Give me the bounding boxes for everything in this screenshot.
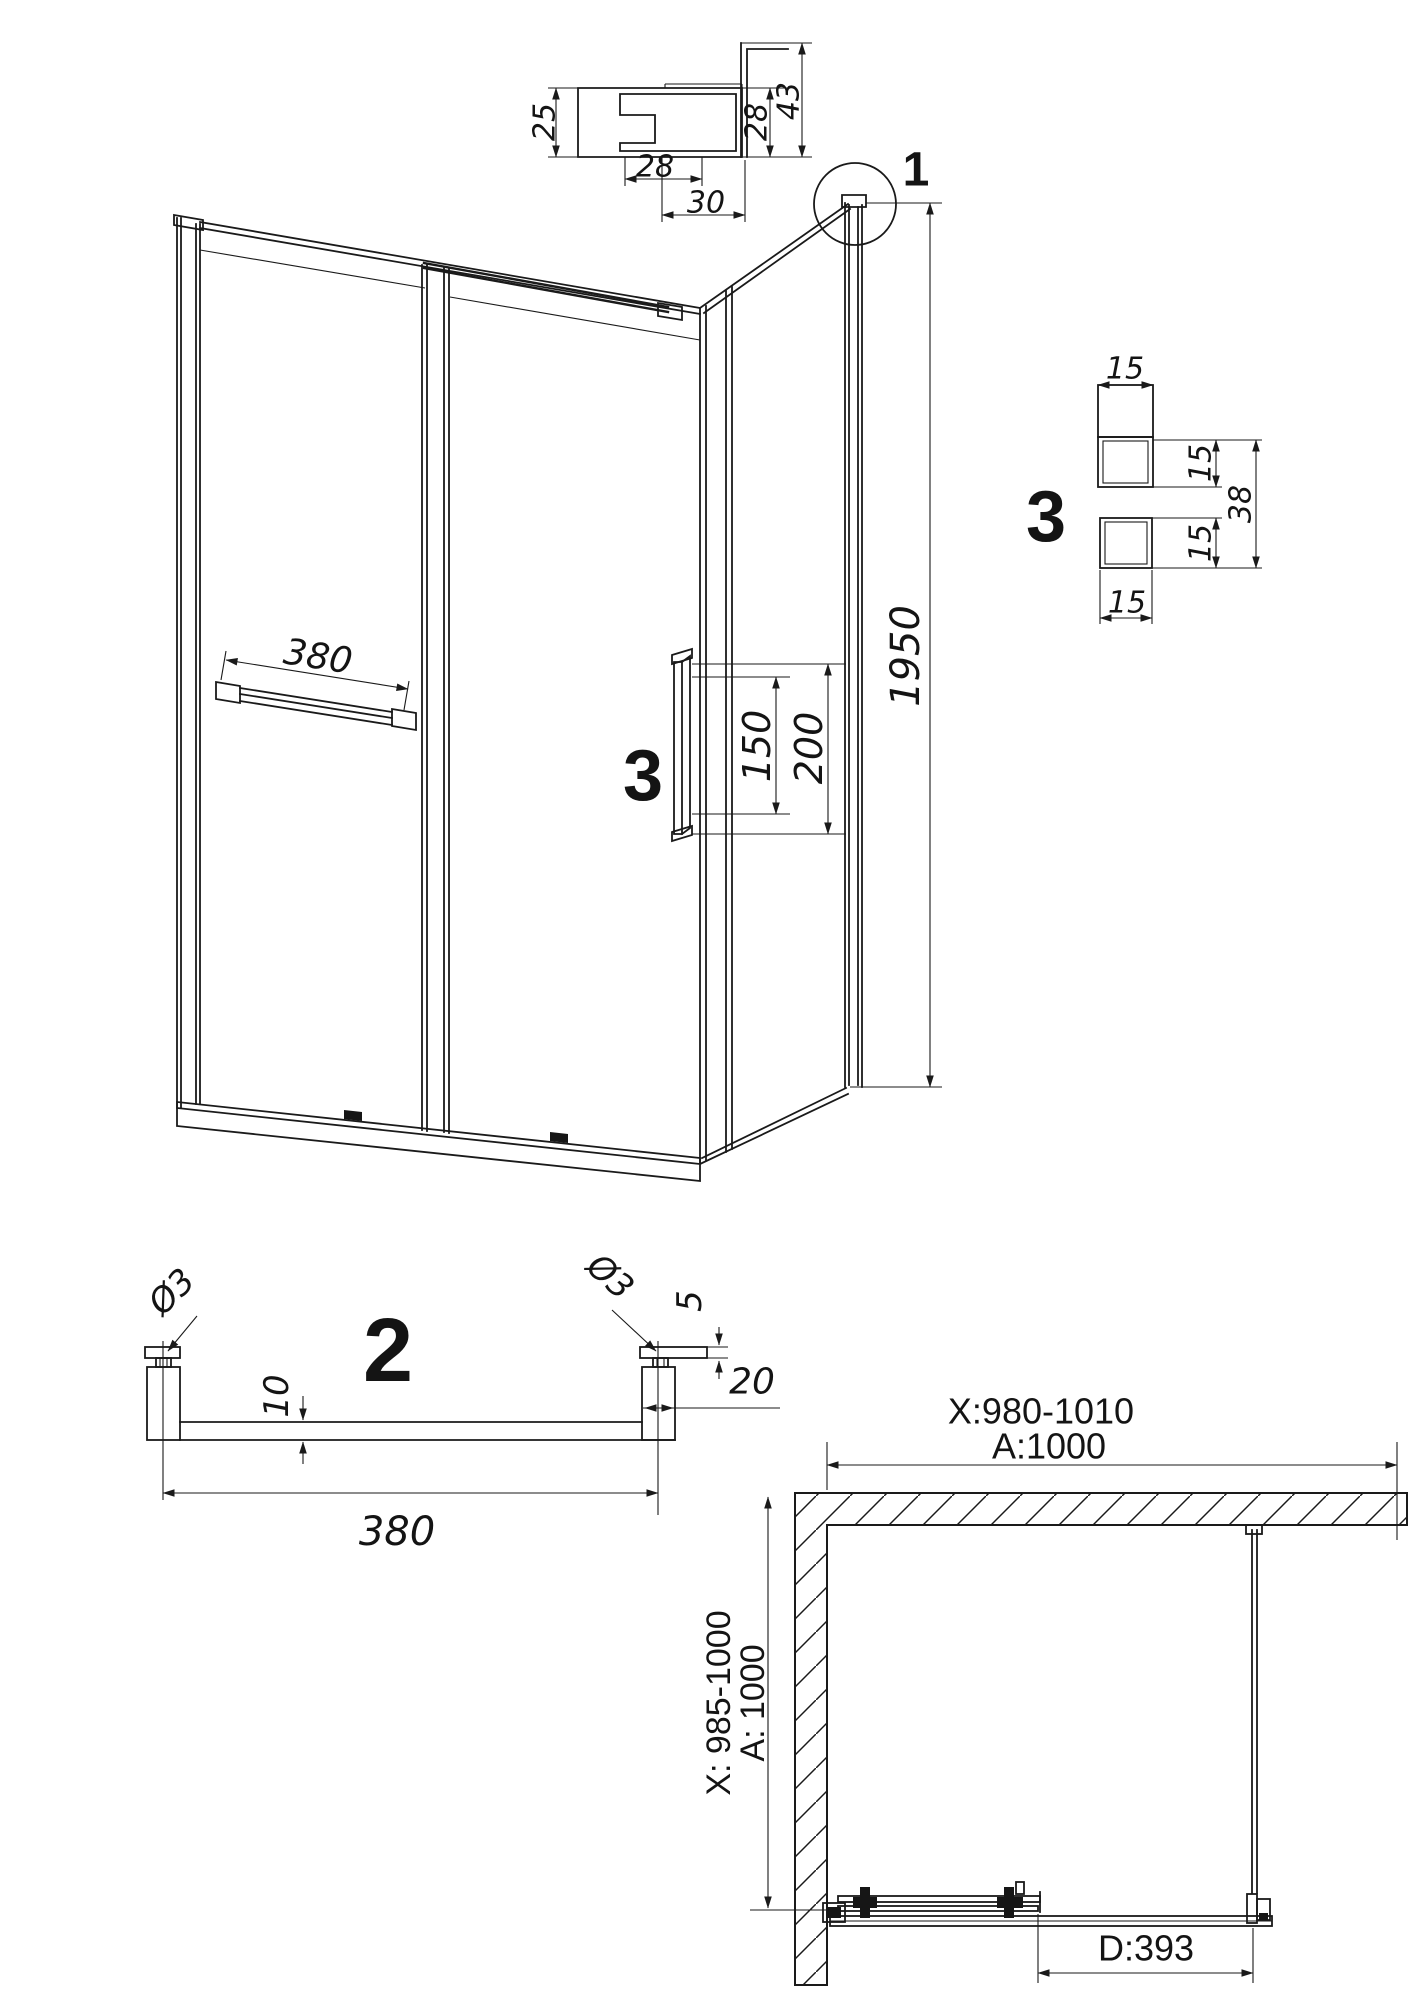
- handle-bar-depth: [682, 656, 690, 834]
- dim-5: 5: [670, 1290, 710, 1312]
- dim-380: 380: [359, 1509, 435, 1555]
- door-handle-plan: [1016, 1882, 1024, 1894]
- dim-d3-right: Ø3: [577, 1245, 641, 1308]
- plan-view: X:980-1010 A:1000 X: 985-1000 A: 1000: [700, 1391, 1407, 1986]
- bar-body: [180, 1422, 675, 1440]
- handle-square-lower: [1100, 518, 1152, 568]
- right-stile: [700, 287, 732, 1163]
- plan-door-opening: D:393: [1098, 1928, 1194, 1969]
- dim-28-right: 28: [740, 103, 775, 141]
- profile-inner-outline: [620, 94, 736, 151]
- left-stile-cap: [174, 215, 203, 230]
- right-end-cap: [640, 1347, 707, 1358]
- corner-post-plan: [1247, 1894, 1257, 1923]
- dim-10: 10: [257, 1374, 297, 1417]
- drawing-canvas: 25 28 30 28 43 1: [0, 0, 1414, 2000]
- dim-380-bar: 380: [281, 631, 355, 682]
- dim-30: 30: [687, 186, 725, 221]
- plan-depth-nominal: A: 1000: [734, 1644, 772, 1761]
- plan-depth-range: X: 985-1000: [700, 1610, 738, 1795]
- detail-handle-cross-section: 15 15 15 38 15 3: [1026, 352, 1262, 625]
- towel-bar: [240, 688, 392, 725]
- detail-top-profile-section: 25 28 30 28 43: [528, 43, 813, 222]
- handle-bar: [674, 662, 682, 834]
- right-screw: [653, 1358, 668, 1367]
- leader-screw-left: [168, 1316, 197, 1351]
- dim-15-top: 15: [1106, 352, 1144, 387]
- back-corner-post: [845, 203, 862, 1087]
- dim-150: 150: [735, 710, 779, 783]
- callout-1-label: 1: [903, 144, 930, 197]
- leader-screw-right: [612, 1310, 656, 1351]
- dim-20: 20: [729, 1362, 775, 1403]
- dim-15-lower: 15: [1184, 524, 1219, 562]
- dim-d3-left: Ø3: [139, 1261, 203, 1325]
- towel-bar-right-cap: [392, 709, 416, 730]
- elevation-view: 380 150 200 3 1950: [174, 195, 942, 1181]
- dim-25: 25: [528, 103, 563, 141]
- left-stile: [177, 218, 200, 1108]
- side-panel-bottom-edge: [700, 1088, 848, 1164]
- callout-1-marker: 1: [814, 144, 929, 246]
- dim-38: 38: [1224, 485, 1259, 523]
- dim-200: 200: [787, 712, 831, 785]
- dim-1950: 1950: [883, 605, 929, 707]
- technical-drawing-page: 25 28 30 28 43 1: [0, 0, 1414, 2000]
- detail-towel-bar-profile: Ø3 Ø3 5 10 20 380 2: [139, 1245, 780, 1555]
- plan-width-nominal: A:1000: [992, 1426, 1106, 1467]
- roller-carriage-left: [853, 1887, 877, 1918]
- bottom-rail: [177, 1102, 700, 1181]
- mount-square: [1098, 385, 1153, 437]
- callout-3-label-elevation: 3: [623, 736, 663, 816]
- callout-3-label-detail: 3: [1026, 477, 1066, 557]
- profile-outer-outline: [578, 88, 742, 157]
- callout-2-label: 2: [363, 1301, 413, 1401]
- dim-15-upper: 15: [1184, 444, 1219, 482]
- panel-division-stiles: [422, 265, 449, 1133]
- side-panel-plan: [1252, 1530, 1257, 1893]
- handle-square-upper: [1098, 437, 1153, 487]
- roller-carriage-right: [997, 1887, 1023, 1918]
- dim-43: 43: [772, 82, 807, 120]
- callout-circle: [814, 163, 896, 245]
- dim-28-bottom: 28: [636, 150, 674, 185]
- dim-15-bottom: 15: [1108, 586, 1146, 621]
- towel-bar-left-cap: [216, 682, 240, 703]
- side-panel-wall-connector: [1246, 1525, 1262, 1534]
